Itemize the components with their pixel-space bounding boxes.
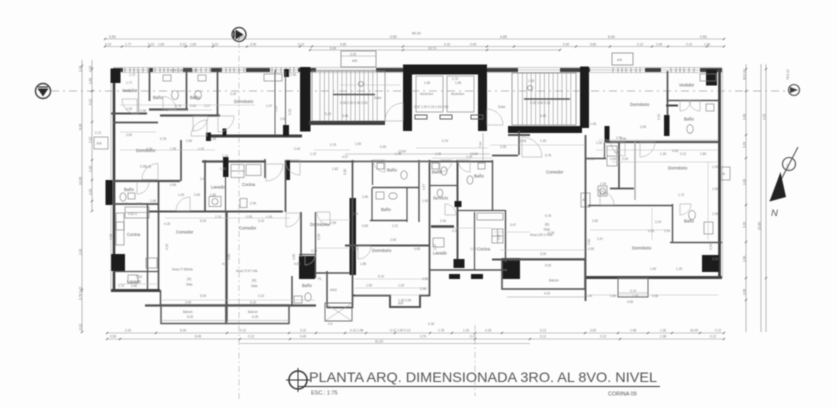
svg-text:4.85: 4.85 [222,262,228,266]
svg-text:2.90: 2.90 [422,277,428,281]
svg-text:2.10: 2.10 [215,215,221,219]
svg-text:(B): (B) [545,223,549,227]
svg-text:2.41: 2.41 [200,177,206,181]
svg-text:0.12: 0.12 [715,329,721,333]
svg-text:2.20: 2.20 [125,329,131,333]
svg-text:1.82: 1.82 [343,169,347,175]
svg-text:2.47: 2.47 [597,237,603,241]
svg-text:0.12: 0.12 [89,99,93,105]
svg-text:5.10: 5.10 [378,275,384,279]
svg-text:CORINA 09: CORINA 09 [608,392,637,398]
svg-text:1.90: 1.90 [366,284,372,288]
svg-text:PL: PL [318,277,322,281]
svg-text:1.85: 1.85 [360,262,366,266]
svg-text:3.52: 3.52 [590,329,596,333]
svg-text:1.00: 1.00 [470,247,476,251]
svg-text:0.50: 0.50 [610,157,616,161]
svg-text:Baño: Baño [124,187,134,192]
svg-text:3.10: 3.10 [311,249,317,253]
svg-text:Sube: Sube [498,105,506,109]
svg-text:Baño: Baño [381,207,391,212]
svg-text:6.00: 6.00 [608,35,615,39]
svg-text:0.95: 0.95 [290,73,296,77]
svg-text:Ascensor: Ascensor [420,92,434,96]
svg-text:3.45: 3.45 [540,114,546,118]
svg-text:2.40: 2.40 [786,164,790,170]
svg-text:15.73: 15.73 [428,46,436,50]
svg-text:4.85: 4.85 [227,254,231,260]
svg-text:2.10: 2.10 [79,249,83,255]
svg-text:4.18: 4.18 [485,329,491,333]
svg-text:0.12: 0.12 [79,324,83,330]
svg-text:0.30 0.30 0.30: 0.30 0.30 0.30 [530,101,551,105]
svg-text:Ascensor: Ascensor [451,92,465,96]
svg-text:3.00: 3.00 [540,252,546,256]
svg-text:Baño: Baño [432,170,442,175]
svg-text:A/A2: A/A2 [330,288,337,292]
svg-text:Area:72.67 mts: Area:72.67 mts [236,269,258,273]
svg-text:1.50: 1.50 [355,142,361,146]
svg-text:1.90: 1.90 [79,66,83,72]
svg-text:0.12: 0.12 [710,335,716,339]
svg-text:2.21: 2.21 [392,224,398,228]
svg-text:3.20: 3.20 [743,222,747,228]
svg-text:0.40: 0.40 [294,147,300,151]
svg-text:PLANTA ARQ. DIMENSIONADA: PLANTA ARQ. DIMENSIONADA 3RO. AL 8VO. NI… [309,370,657,385]
svg-text:1.45: 1.45 [520,139,526,143]
svg-text:4.85: 4.85 [294,262,300,266]
svg-text:4.57: 4.57 [342,155,348,159]
svg-text:A/A: A/A [617,58,623,62]
svg-text:Baño: Baño [302,283,312,288]
svg-text:5.12: 5.12 [540,335,546,339]
svg-text:0.12: 0.12 [105,42,111,46]
svg-text:Cocina: Cocina [477,247,491,252]
svg-text:5.00: 5.00 [200,294,206,298]
svg-text:1.60: 1.60 [150,199,156,203]
svg-text:16.35: 16.35 [690,329,698,333]
svg-text:2.82: 2.82 [587,239,591,245]
svg-text:3.20: 3.20 [230,92,236,96]
svg-text:0.72: 0.72 [95,131,101,135]
svg-text:1.72: 1.72 [678,193,684,197]
svg-text:Comedor: Comedor [546,170,564,175]
svg-text:1.10: 1.10 [352,247,358,251]
svg-text:0.70: 0.70 [330,143,336,147]
svg-text:2.47: 2.47 [433,244,437,250]
svg-text:0.68: 0.68 [652,294,658,298]
svg-text:0.12: 0.12 [212,42,218,46]
svg-text:0.90: 0.90 [246,215,252,219]
svg-text:3.10: 3.10 [655,220,661,224]
svg-text:1.82: 1.82 [210,193,216,197]
svg-text:0.52 1.00 0.15 1.00 0.52: 0.52 1.00 0.15 1.00 0.52 [414,105,449,109]
svg-text:4.55: 4.55 [763,114,767,120]
svg-text:4.65: 4.65 [500,35,507,39]
svg-text:16.0.12: 16.0.12 [743,69,747,80]
svg-text:31.00: 31.00 [375,340,383,344]
svg-text:0.50: 0.50 [109,35,116,39]
svg-text:Sala: Sala [544,228,551,232]
svg-text:Baño: Baño [684,219,694,224]
svg-text:1.00: 1.00 [435,152,441,156]
svg-text:1.10: 1.10 [310,152,316,156]
svg-text:Baño: Baño [190,95,200,100]
svg-text:1.46: 1.46 [704,42,710,46]
svg-text:1.35 0.90: 1.35 0.90 [398,299,412,303]
svg-text:Balcón: Balcón [248,310,258,314]
svg-text:0.40: 0.40 [586,294,592,298]
svg-text:3.52: 3.52 [657,114,661,120]
svg-text:3.20: 3.20 [712,257,718,261]
svg-text:0.50: 0.50 [700,35,707,39]
svg-text:5.80: 5.80 [590,42,596,46]
svg-text:1.00: 1.00 [600,182,606,186]
svg-text:Dormitorio: Dormitorio [372,248,392,253]
svg-text:9.45: 9.45 [300,335,306,339]
svg-text:0.76 0.12: 0.76 0.12 [79,286,83,300]
svg-text:0.95: 0.95 [140,109,146,113]
svg-text:50.10: 50.10 [412,32,421,36]
svg-text:4.37: 4.37 [452,229,458,233]
svg-text:0.60: 0.60 [136,202,142,206]
svg-text:4.10: 4.10 [444,42,450,46]
svg-text:3.10: 3.10 [258,219,264,223]
svg-text:8.16: 8.16 [79,124,83,130]
svg-text:2.05: 2.05 [500,145,506,149]
svg-text:1.00: 1.00 [596,141,602,145]
svg-text:0.70: 0.70 [420,335,426,339]
svg-text:1.65: 1.65 [620,137,626,141]
svg-text:1.60: 1.60 [190,42,196,46]
svg-text:Baño: Baño [474,174,484,179]
svg-text:2.90: 2.90 [420,287,426,291]
svg-text:4.57: 4.57 [422,184,426,190]
svg-text:3.20: 3.20 [145,165,151,169]
svg-text:1.46: 1.46 [590,122,596,126]
svg-text:1.78: 1.78 [438,329,444,333]
svg-text:7.44: 7.44 [479,142,483,148]
svg-text:1.00: 1.00 [712,165,718,169]
svg-text:0.40: 0.40 [563,42,569,46]
svg-text:Baño: Baño [684,117,694,122]
svg-text:0.60: 0.60 [186,139,192,143]
svg-text:0.83: 0.83 [648,229,654,233]
svg-text:4.20: 4.20 [544,292,550,296]
svg-text:1.70: 1.70 [118,284,124,288]
svg-text:4.50: 4.50 [627,300,633,304]
svg-text:78.0.12: 78.0.12 [786,69,790,80]
svg-text:4.16: 4.16 [109,234,113,240]
svg-text:13.84: 13.84 [470,152,478,156]
svg-text:0.95: 0.95 [210,137,216,141]
svg-text:2.90: 2.90 [390,238,396,242]
svg-text:4.52.0: 4.52.0 [128,212,137,216]
svg-text:1.00: 1.00 [664,229,670,233]
svg-text:1.30: 1.30 [463,329,469,333]
svg-text:A/R: A/R [352,59,358,63]
svg-text:Baño: Baño [153,95,163,100]
svg-text:3.10: 3.10 [258,294,264,298]
svg-text:4.85: 4.85 [292,254,296,260]
svg-text:Dormitorio: Dormitorio [310,222,330,227]
svg-text:1.92: 1.92 [422,199,428,203]
svg-text:1.20: 1.20 [398,284,404,288]
svg-text:Comedor: Comedor [176,230,194,235]
svg-text:0.80: 0.80 [362,224,368,228]
svg-text:1.98: 1.98 [630,329,636,333]
svg-text:3.53: 3.53 [709,244,713,250]
svg-text:3.53: 3.53 [317,234,321,240]
svg-text:Lavado: Lavado [433,251,447,256]
svg-text:1.90: 1.90 [330,221,336,225]
svg-text:0.78: 0.78 [160,137,166,141]
svg-text:1.98: 1.98 [660,335,666,339]
svg-text:1.77: 1.77 [126,81,132,85]
svg-text:N: N [771,208,778,219]
svg-text:0.78: 0.78 [175,104,181,108]
svg-text:2.00: 2.00 [350,53,356,57]
svg-text:12.06: 12.06 [79,177,83,185]
svg-text:1.15: 1.15 [122,202,128,206]
svg-text:A/A: A/A [97,142,103,146]
svg-text:3.50: 3.50 [588,247,594,251]
svg-text:Balcón: Balcón [549,279,559,283]
svg-text:2.62: 2.62 [280,117,286,121]
svg-text:1.60: 1.60 [743,289,747,295]
svg-text:1.80: 1.80 [700,152,706,156]
svg-text:1.65: 1.65 [424,81,430,85]
svg-text:0.50: 0.50 [110,335,116,339]
svg-text:3.45: 3.45 [342,114,348,118]
svg-text:5.25: 5.25 [252,315,258,319]
svg-text:0.45: 0.45 [470,42,476,46]
svg-text:2.90: 2.90 [362,195,368,199]
svg-text:0.60: 0.60 [190,104,196,108]
svg-text:1.60: 1.60 [743,179,747,185]
svg-text:0.12: 0.12 [148,42,154,46]
svg-text:4.20 1.60 0.12 1.60: 4.20 1.60 0.12 1.60 [170,69,198,73]
svg-text:Sala: Sala [251,284,258,288]
svg-text:1.05: 1.05 [126,107,132,111]
svg-text:2.82: 2.82 [592,219,598,223]
svg-text:3.22: 3.22 [89,137,93,143]
svg-text:5.00: 5.00 [200,219,206,223]
svg-text:ESC.: 1:75: ESC.: 1:75 [311,391,338,397]
svg-text:4.65: 4.65 [340,42,346,46]
svg-text:Vestidor: Vestidor [122,88,138,93]
svg-text:Cocina: Cocina [127,232,141,237]
svg-text:4.16: 4.16 [428,322,434,326]
svg-text:1.90: 1.90 [650,267,656,271]
svg-text:0.12: 0.12 [686,42,692,46]
svg-text:1.45: 1.45 [395,152,401,156]
svg-text:Baño: Baño [387,168,397,173]
svg-text:4.15: 4.15 [165,244,169,250]
svg-text:0.84: 0.84 [610,294,616,298]
svg-text:2.90: 2.90 [250,202,256,206]
svg-text:Area:77.85mts: Area:77.85mts [172,268,193,272]
svg-text:3.45: 3.45 [640,125,646,129]
svg-text:0.12: 0.12 [470,335,476,339]
svg-text:1.00: 1.00 [178,193,184,197]
svg-text:1.07: 1.07 [204,104,210,108]
svg-text:Balcón: Balcón [183,310,193,314]
svg-text:Dormitorio: Dormitorio [630,102,650,107]
svg-text:0.65: 0.65 [414,247,420,251]
svg-text:1.40: 1.40 [220,167,226,171]
svg-text:Servicio: Servicio [433,196,449,201]
svg-text:0.80: 0.80 [131,284,137,288]
svg-text:0.90: 0.90 [194,193,200,197]
svg-text:0.45: 0.45 [380,145,386,149]
svg-text:Dormitorio: Dormitorio [234,99,254,104]
svg-text:1.82: 1.82 [332,167,338,171]
svg-text:0.70: 0.70 [452,77,458,81]
svg-text:1.60: 1.60 [743,114,747,120]
svg-text:2.40: 2.40 [440,219,446,223]
svg-text:0.90: 0.90 [170,183,176,187]
svg-text:1.07: 1.07 [266,104,272,108]
svg-text:5.20: 5.20 [274,106,278,112]
svg-text:Vestidor: Vestidor [679,83,695,88]
svg-text:2.00: 2.00 [622,157,628,161]
svg-text:1.50: 1.50 [632,294,638,298]
svg-text:3.10: 3.10 [300,329,306,333]
svg-text:0.12 1.00 0.13: 0.12 1.00 0.13 [390,329,411,333]
svg-text:Dormitorio: Dormitorio [136,148,156,153]
svg-text:5.76: 5.76 [545,154,551,158]
svg-text:3.47: 3.47 [510,223,516,227]
svg-text:0.9: 0.9 [328,322,333,326]
svg-text:0.12: 0.12 [248,335,254,339]
svg-text:1.10: 1.10 [222,154,228,158]
svg-text:0.30 0.30 0.30 0.30: 0.30 0.30 0.30 0.30 [340,101,368,105]
svg-text:0.12: 0.12 [180,42,186,46]
svg-text:1.72: 1.72 [129,73,135,77]
svg-text:1.80: 1.80 [89,78,93,84]
svg-text:Comedor: Comedor [239,226,257,231]
svg-text:3.14: 3.14 [630,289,636,293]
svg-text:1.30: 1.30 [660,329,666,333]
svg-text:0.13 1.98: 0.13 1.98 [350,329,364,333]
svg-text:2.96: 2.96 [588,157,594,161]
svg-text:Cocina: Cocina [242,182,256,187]
svg-text:2.46: 2.46 [656,42,662,46]
svg-text:Dormitorio: Dormitorio [632,246,652,251]
svg-text:1.65: 1.65 [528,79,534,83]
svg-text:3.20: 3.20 [288,109,292,115]
svg-text:1.30: 1.30 [660,152,666,156]
svg-text:(B): (B) [252,279,256,283]
svg-text:3.00: 3.00 [185,301,191,305]
svg-text:1.60: 1.60 [712,187,718,191]
svg-text:10.68: 10.68 [758,222,762,230]
svg-text:5.00: 5.00 [187,315,193,319]
svg-text:2.62: 2.62 [126,133,132,137]
svg-text:Sala: Sala [186,283,193,287]
svg-text:Lavado: Lavado [127,279,141,284]
svg-text:1.77: 1.77 [125,42,131,46]
svg-text:1.02: 1.02 [198,147,204,151]
svg-text:1.60: 1.60 [743,256,747,262]
svg-text:5.90: 5.90 [330,46,336,50]
svg-text:1.20: 1.20 [676,267,682,271]
svg-text:5.00: 5.00 [545,264,551,268]
svg-text:0.12: 0.12 [298,42,304,46]
svg-text:1.50: 1.50 [614,150,620,154]
svg-text:3.47: 3.47 [497,234,501,240]
svg-text:Lavado: Lavado [211,185,225,190]
svg-text:5.76: 5.76 [545,214,551,218]
svg-text:3.10: 3.10 [250,301,256,305]
svg-text:2.90: 2.90 [89,66,93,72]
svg-text:0.12: 0.12 [240,329,246,333]
svg-text:3.90: 3.90 [250,42,256,46]
svg-text:5.00: 5.00 [180,329,186,333]
svg-text:2.00: 2.00 [89,189,93,195]
svg-text:5.20: 5.20 [325,112,331,116]
svg-text:1.45: 1.45 [540,139,546,143]
svg-text:4.16: 4.16 [89,166,93,172]
svg-text:3.20: 3.20 [743,142,747,148]
svg-text:1.95: 1.95 [170,147,176,151]
svg-text:4.15: 4.15 [164,222,170,226]
svg-text:0.50: 0.50 [390,35,397,39]
svg-text:0.12: 0.12 [637,42,643,46]
svg-text:Area:129.17mts: Area:129.17mts [530,233,553,237]
svg-text:1.00: 1.00 [266,215,272,219]
svg-text:4.06: 4.06 [672,149,678,153]
svg-text:0.90: 0.90 [352,212,358,216]
svg-text:1.00: 1.00 [712,212,718,216]
svg-text:(A): (A) [187,277,191,281]
svg-text:2.40: 2.40 [600,192,606,196]
svg-text:Dormitorio: Dormitorio [668,166,688,171]
svg-text:8.45: 8.45 [195,335,201,339]
svg-text:1.65: 1.65 [455,81,461,85]
svg-text:0.70: 0.70 [442,139,448,143]
svg-text:0.12: 0.12 [600,335,606,339]
svg-text:Sube: Sube [374,96,382,100]
svg-text:0.12: 0.12 [680,152,686,156]
svg-text:5.12: 5.12 [540,329,546,333]
svg-text:1.60: 1.60 [158,42,164,46]
